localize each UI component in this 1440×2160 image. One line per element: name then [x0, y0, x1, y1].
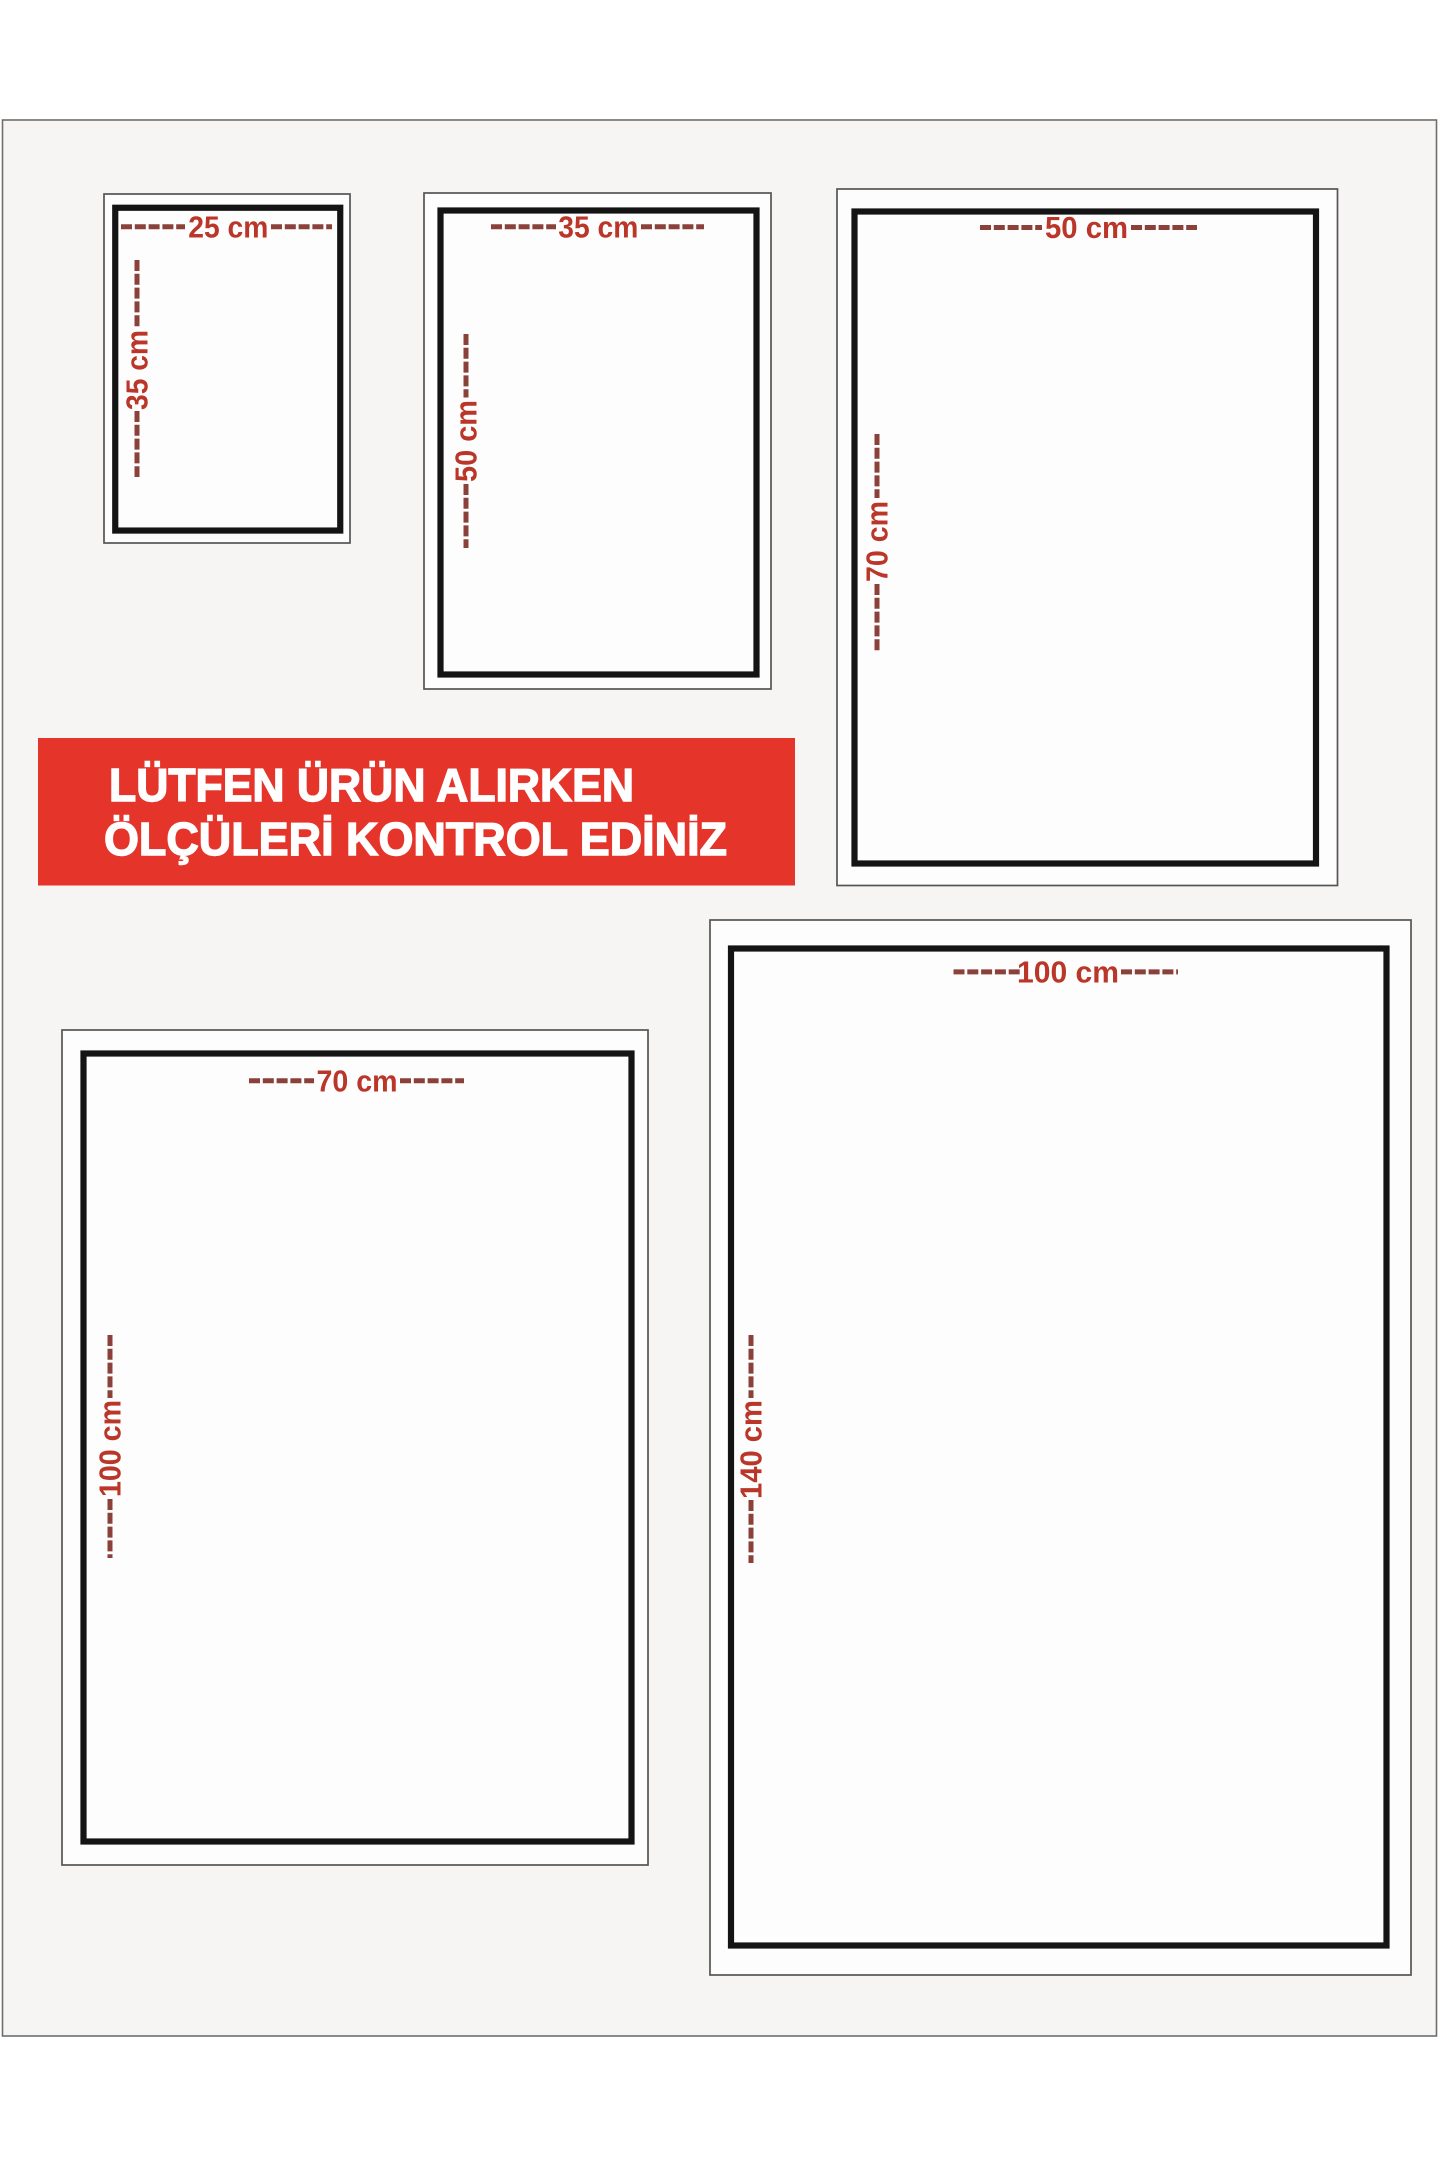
svg-text:LÜTFEN ÜRÜN ALIRKEN: LÜTFEN ÜRÜN ALIRKEN [109, 759, 634, 811]
svg-text:50 cm: 50 cm [1045, 210, 1128, 245]
svg-text:50 cm: 50 cm [449, 400, 484, 482]
svg-text:35 cm: 35 cm [120, 330, 155, 410]
svg-text:140 cm: 140 cm [734, 1400, 769, 1499]
svg-text:70 cm: 70 cm [860, 501, 895, 582]
svg-text:ÖLÇÜLERİ KONTROL EDİNİZ: ÖLÇÜLERİ KONTROL EDİNİZ [104, 813, 727, 865]
svg-text:25 cm: 25 cm [188, 209, 268, 244]
svg-text:100 cm: 100 cm [93, 1400, 128, 1497]
svg-text:100 cm: 100 cm [1017, 955, 1119, 990]
svg-text:35 cm: 35 cm [558, 209, 638, 244]
svg-text:70 cm: 70 cm [317, 1064, 398, 1099]
